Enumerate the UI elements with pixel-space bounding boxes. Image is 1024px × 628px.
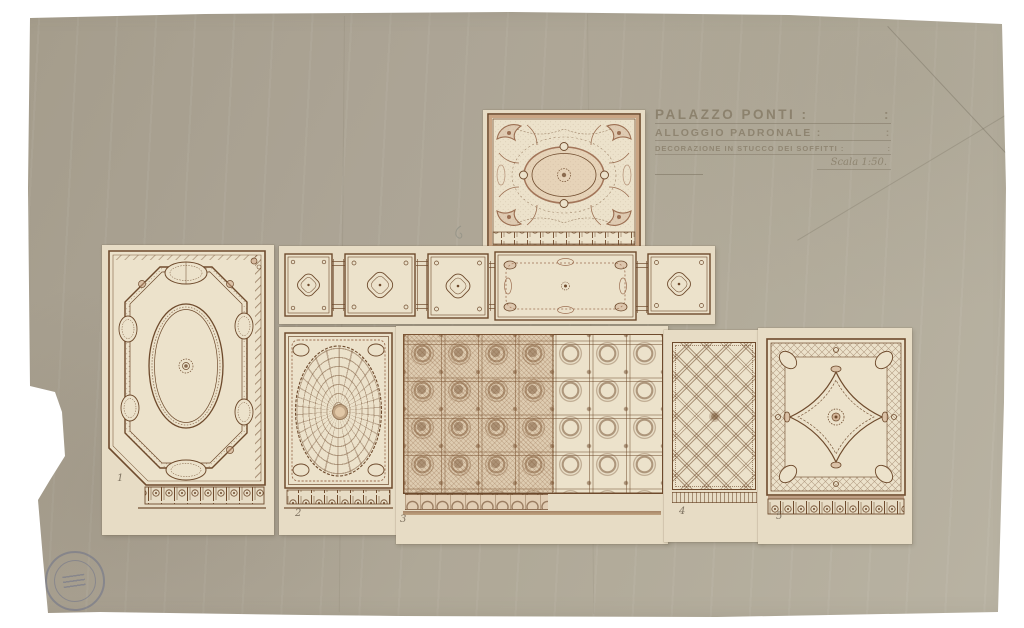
paper-crease [887,26,1024,246]
cove-panel-b-drawing [344,253,416,317]
cove-strip-mount [279,246,715,324]
striped-frieze [672,492,757,503]
pencil-squiggle [452,224,466,242]
circular-archive-stamp [41,547,109,615]
title-line-3: DECORAZIONE IN STUCCO DEI SOFFITTI : : [655,144,891,155]
panel-2-number: 2 [295,508,301,519]
ruled-line-stub [655,170,703,175]
title-text: ALLOGGIO PADRONALE : [655,127,822,139]
title-tail-colon: : [886,127,891,139]
title-line-2: ALLOGGIO PADRONALE : : [655,127,891,141]
cove-beam [417,259,427,311]
ceiling-panel-top-drawing [487,113,641,250]
cove-panel-a-drawing [284,253,333,317]
coffer-grid-ornamented-half [403,334,554,492]
cove-beam [333,259,344,311]
cove-panel-e-drawing [647,253,711,315]
cove-panel-wide-drawing [494,251,637,321]
cornice-bar [403,511,661,515]
ceiling-panel-3-mount [396,326,668,544]
panel-5-number: 5 [776,511,782,522]
scale-text: Scala 1:50. [817,157,891,170]
ceiling-panel-5-drawing [766,338,906,520]
ceiling-panel-1-mount [102,245,274,535]
arched-frieze [405,494,548,510]
panel-4-number: 4 [679,506,685,517]
drawing-sheet: PALAZZO PONTI : : ALLOGGIO PADRONALE : :… [0,0,1024,628]
scan-background: PALAZZO PONTI : : ALLOGGIO PADRONALE : :… [0,0,1024,628]
title-line-1: PALAZZO PONTI : : [655,107,891,124]
panel-3-number: 3 [400,514,406,525]
title-text: PALAZZO PONTI : [655,107,809,122]
ceiling-panel-1-drawing [108,250,266,512]
radial-web-pattern [296,347,381,475]
scale-note: Scala 1:50. [655,157,891,170]
title-tail-colon: : [884,107,891,122]
panel-1-number: 1 [117,473,123,484]
ceiling-panel-top-mount [483,110,645,254]
title-tail-colon: : [888,144,892,153]
title-block: PALAZZO PONTI : : ALLOGGIO PADRONALE : :… [655,104,891,175]
cove-panel-c-drawing [427,253,489,319]
title-text: DECORAZIONE IN STUCCO DEI SOFFITTI : [655,144,844,153]
ceiling-panel-2-mount [279,327,398,535]
cove-beam [637,261,647,313]
lattice-pattern [672,342,756,490]
